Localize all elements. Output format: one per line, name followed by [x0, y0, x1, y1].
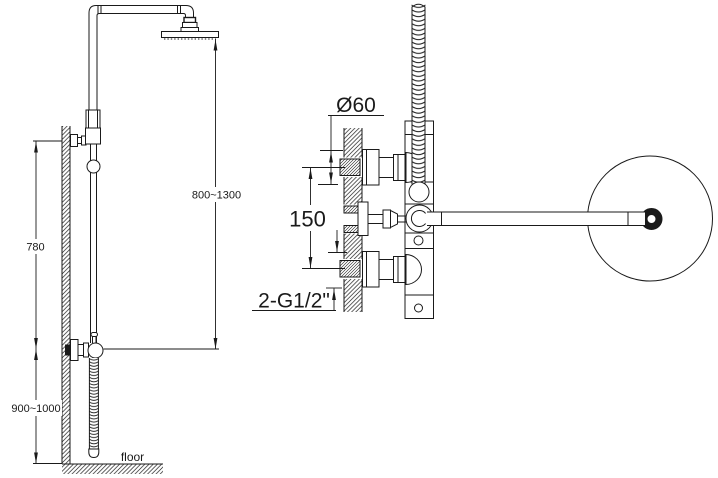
dim-label-900-1000: 900~1000	[11, 403, 60, 415]
floor-hatch	[62, 464, 163, 474]
arrowhead	[329, 152, 333, 163]
shower-head-plate	[162, 32, 219, 38]
dim-label-800-1300: 800~1300	[192, 190, 241, 202]
shower-head	[162, 18, 219, 40]
dim-label-780: 780	[26, 242, 44, 254]
side-view: 780 900~1000 800~1300 floor	[10, 6, 241, 475]
diverter-knob	[91, 333, 98, 337]
slider-knob	[87, 160, 100, 173]
hose-end-tip	[89, 449, 99, 458]
hose-ball-joint	[409, 182, 429, 202]
arrowhead	[34, 142, 38, 153]
arrowhead	[214, 40, 218, 51]
arrowhead	[34, 338, 38, 349]
wall-anchor	[66, 345, 71, 355]
escutcheon	[363, 150, 380, 186]
dim-label-diameter-60: Ø60	[336, 94, 376, 117]
valve-body	[88, 343, 103, 358]
arrowhead	[332, 289, 336, 300]
valve-assembly	[66, 333, 104, 361]
arrowhead	[214, 338, 218, 349]
arrowhead	[34, 453, 38, 464]
arrowhead	[335, 241, 339, 252]
stem-plate	[358, 202, 368, 236]
hand-shower-hose	[89, 358, 99, 458]
floor-label: floor	[121, 450, 144, 464]
shower-installation-drawing: 780 900~1000 800~1300 floor	[0, 0, 718, 478]
dim-label-thread-spec: 2-G1/2"	[258, 290, 330, 313]
riser-pipe	[89, 6, 194, 111]
arrowhead	[329, 173, 333, 184]
overhead-arm	[427, 212, 645, 226]
front-flexible-hose	[412, 4, 426, 185]
front-view: Ø60 150 2-G1/2"	[252, 4, 713, 319]
technical-drawing-canvas: 780 900~1000 800~1300 floor	[0, 0, 718, 478]
arrowhead	[309, 168, 313, 179]
arrowhead	[34, 349, 38, 360]
arrowhead	[309, 257, 313, 268]
slide-bracket	[71, 110, 101, 147]
wall-flange	[71, 340, 79, 361]
dim-label-150: 150	[289, 207, 326, 232]
escutcheon	[363, 252, 380, 288]
wall-section-hatch	[62, 126, 70, 464]
